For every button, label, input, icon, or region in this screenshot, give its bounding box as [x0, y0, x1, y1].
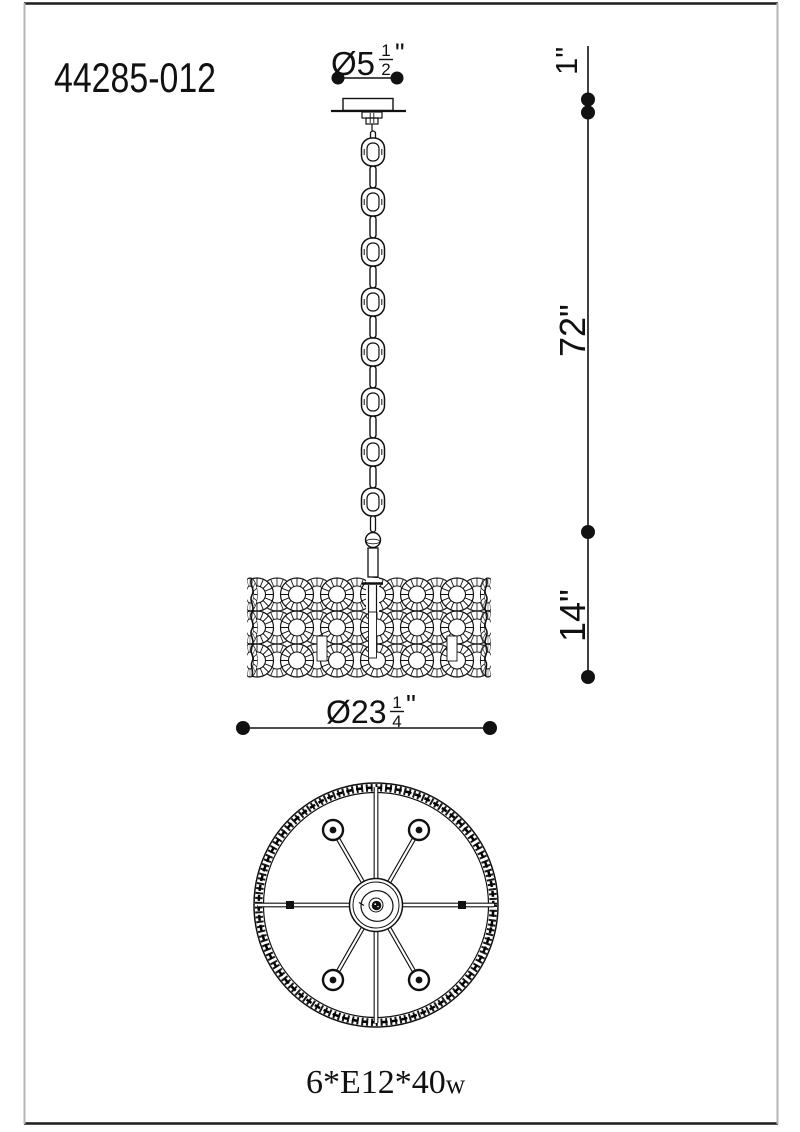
chain-link — [370, 266, 376, 288]
candle-sleeve — [447, 636, 457, 661]
drum-diameter-label: Ø23 — [326, 694, 386, 730]
dimension-dot — [391, 72, 404, 85]
chain-link — [362, 438, 385, 466]
stem-drawing — [366, 533, 381, 578]
drum-diameter-dimension: Ø23 1 4 " — [236, 689, 497, 735]
drum-shade-drawing — [221, 578, 514, 677]
chain-link — [370, 366, 376, 388]
lamp-spec: 6*E12*40w — [306, 1064, 466, 1101]
dimension-dot — [236, 721, 250, 735]
dimension-dot — [581, 525, 595, 539]
lamp-spec-main: 6*E12*40 — [306, 1064, 446, 1101]
chain-drawing — [362, 131, 385, 532]
chain-link — [370, 166, 376, 188]
stem-rod — [368, 548, 378, 577]
chain-link — [362, 188, 385, 216]
canopy-diameter-dimension: Ø5 1 2 " — [331, 38, 405, 85]
height-dimension: 1" 72" 14" — [549, 46, 595, 684]
chain-link — [370, 416, 376, 438]
chain-link — [370, 316, 376, 338]
chain-link — [370, 466, 376, 488]
lamp-spec-watt-suffix: w — [446, 1069, 466, 1099]
page-frame — [24, 3, 778, 1124]
chain-link — [362, 138, 385, 166]
model-number: 44285-012 — [54, 54, 216, 101]
dimension-dot — [332, 72, 345, 85]
canopy-diameter-fraction-denominator: 2 — [381, 60, 390, 79]
dimension-dot — [581, 93, 595, 107]
canopy-height-label: 1" — [549, 47, 584, 75]
drum-height-label: 14" — [552, 589, 593, 642]
chain-link — [362, 238, 385, 266]
technical-drawing-canvas: 44285-012 Ø5 1 2 " — [0, 0, 800, 1132]
chain-link — [370, 216, 376, 238]
chain-link — [362, 338, 385, 366]
canopy-diameter-unit: " — [395, 38, 405, 68]
dimension-dot — [483, 721, 497, 735]
arm-socket-mark — [458, 901, 466, 909]
chain-link — [371, 516, 376, 532]
canopy-drawing — [331, 99, 406, 133]
drum-diameter-fraction-numerator: 1 — [392, 693, 401, 712]
dimension-dot — [581, 106, 595, 120]
top-view-drawing — [238, 767, 513, 1042]
canopy-diameter-fraction-numerator: 1 — [381, 41, 390, 60]
chain-link — [362, 288, 385, 316]
center-hub — [350, 879, 403, 932]
chain-length-label: 72" — [552, 304, 593, 357]
candle-sleeve — [317, 636, 327, 661]
chain-link — [362, 388, 385, 416]
spec-sheet-page: 44285-012 Ø5 1 2 " — [0, 0, 800, 1132]
chain-link — [362, 488, 385, 516]
drum-diameter-unit: " — [406, 689, 416, 720]
dimension-dot — [581, 670, 595, 684]
hanger-bracket — [362, 112, 382, 118]
arm-socket-mark — [286, 901, 294, 909]
